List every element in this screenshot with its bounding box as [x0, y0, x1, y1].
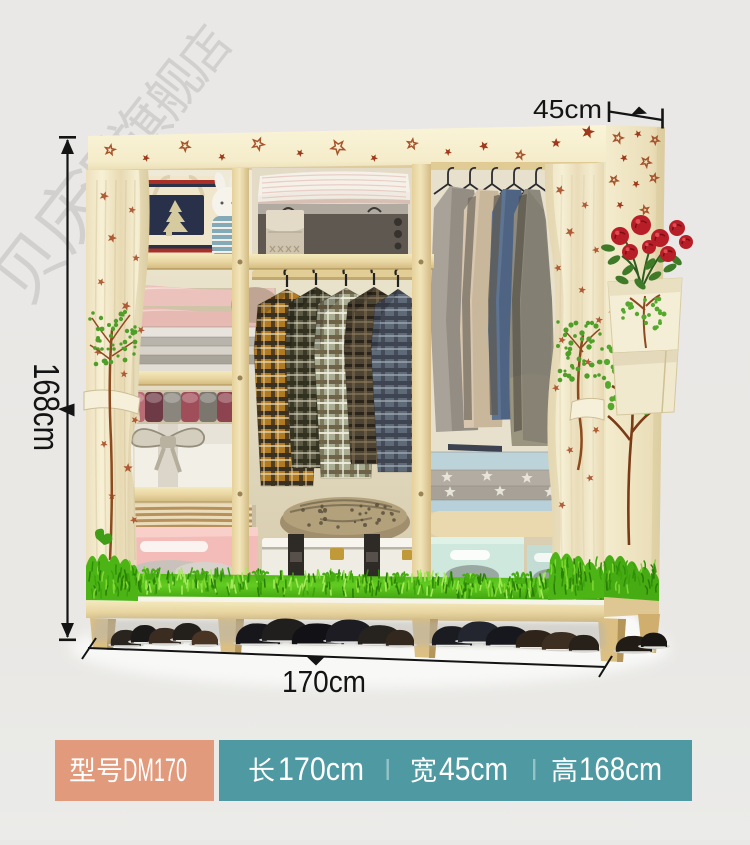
svg-text:170cm: 170cm [282, 664, 366, 699]
svg-text:45cm: 45cm [533, 94, 602, 124]
svg-text:170cm: 170cm [278, 751, 364, 787]
svg-text:168cm: 168cm [579, 751, 662, 787]
svg-text:168cm: 168cm [26, 363, 67, 451]
svg-text:DM170: DM170 [123, 752, 187, 788]
svg-text:45cm: 45cm [439, 751, 508, 787]
